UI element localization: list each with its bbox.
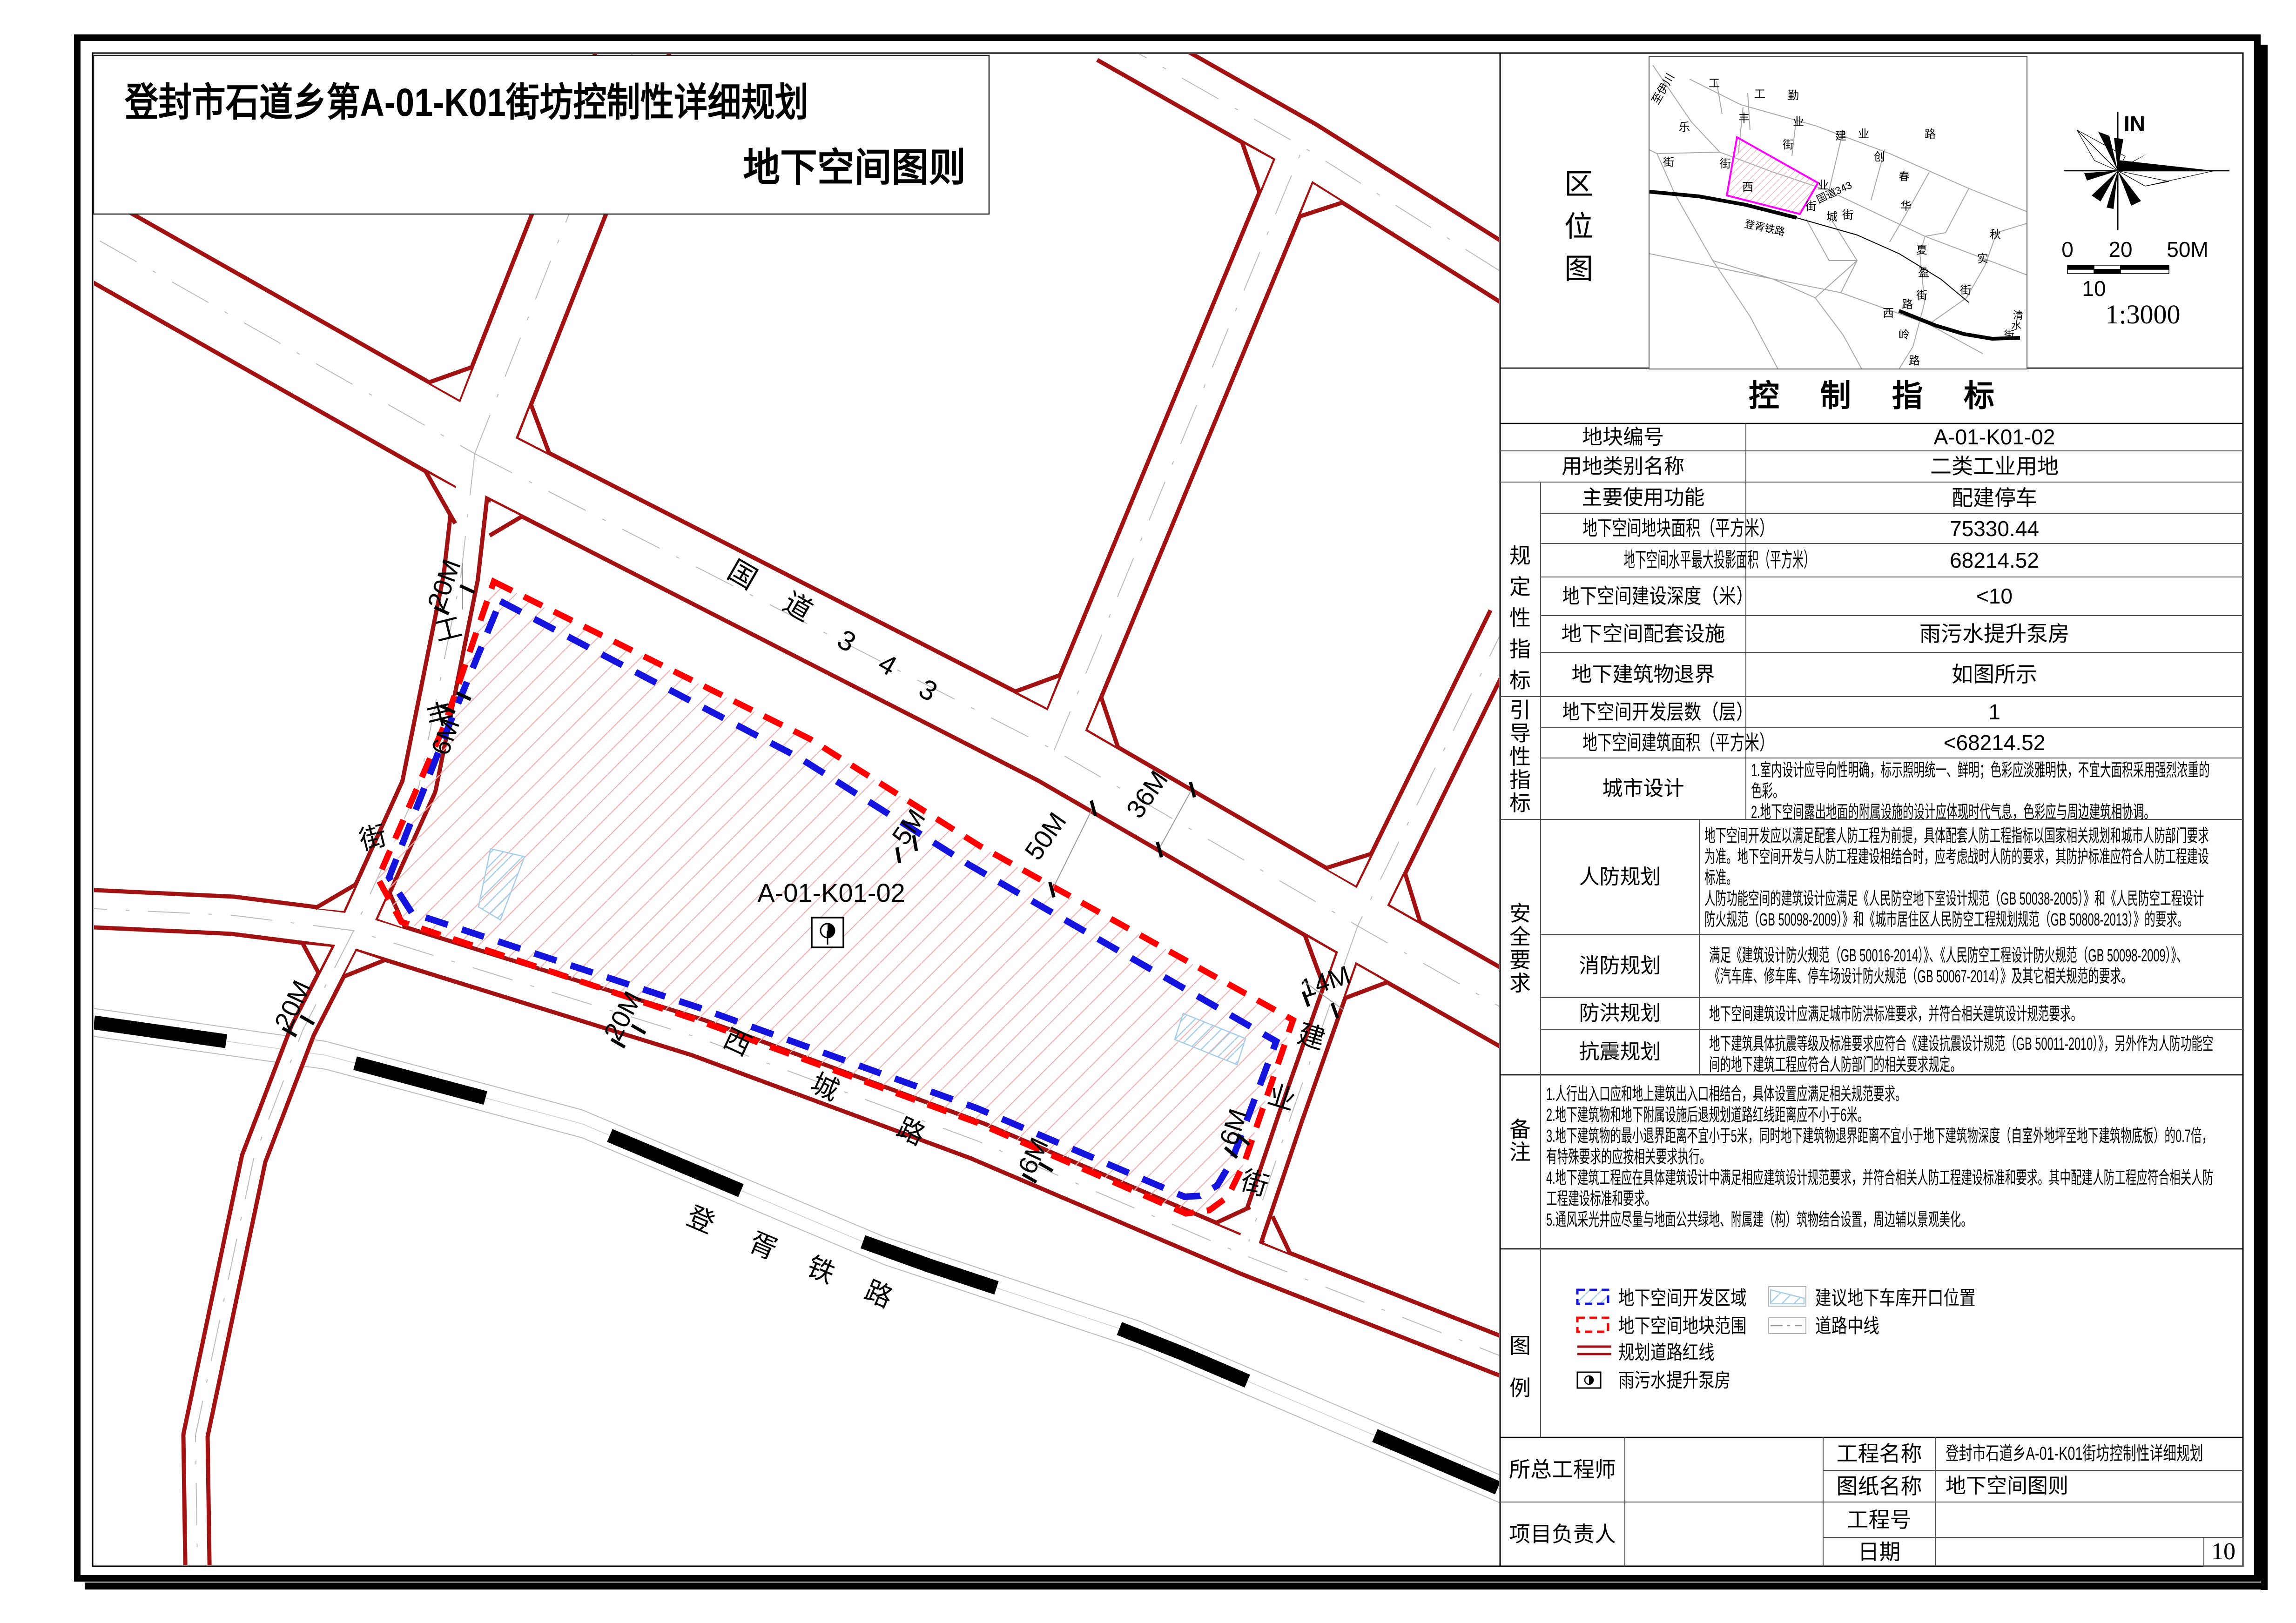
svg-text:春: 春: [1899, 170, 1910, 183]
svg-text:勤: 勤: [1788, 89, 1799, 102]
svg-text:西: 西: [1742, 181, 1753, 194]
svg-text:50M: 50M: [2167, 237, 2208, 262]
svg-text:秋: 秋: [1990, 228, 2001, 241]
svg-text:工: 工: [1754, 88, 1765, 101]
svg-text:丰: 丰: [1738, 112, 1750, 125]
svg-text:业: 业: [1793, 116, 1804, 128]
svg-text:路: 路: [1925, 128, 1936, 141]
svg-text:街: 街: [1842, 209, 1853, 221]
svg-text:路: 路: [1902, 298, 1913, 311]
svg-text:路: 路: [1909, 355, 1920, 367]
svg-text:1:3000: 1:3000: [2105, 299, 2180, 329]
svg-text:街: 街: [1783, 139, 1794, 151]
svg-text:街: 街: [1805, 200, 1817, 213]
svg-text:城: 城: [1826, 211, 1838, 223]
svg-text:街: 街: [1960, 284, 1971, 297]
svg-text:建: 建: [1835, 130, 1846, 142]
svg-text:A-01-K01-02: A-01-K01-02: [757, 878, 905, 907]
svg-text:IN: IN: [2124, 112, 2145, 136]
svg-text:乐: 乐: [1679, 121, 1690, 134]
svg-text:实: 实: [1977, 253, 1988, 265]
svg-text:0: 0: [2061, 237, 2074, 262]
svg-text:10: 10: [2082, 276, 2106, 301]
svg-text:华: 华: [1900, 200, 1912, 213]
svg-text:夏: 夏: [1916, 244, 1927, 256]
svg-text:20: 20: [2108, 237, 2132, 262]
svg-text:街: 街: [1663, 156, 1674, 169]
svg-text:业: 业: [1858, 128, 1869, 141]
svg-text:创: 创: [1874, 151, 1885, 163]
svg-text:西: 西: [1883, 307, 1894, 320]
svg-text:工: 工: [1709, 77, 1720, 90]
svg-text:街: 街: [1916, 289, 1927, 302]
svg-text:岭: 岭: [1899, 329, 1910, 341]
svg-text:街: 街: [1720, 158, 1731, 170]
svg-text:街: 街: [2004, 329, 2014, 341]
svg-text:盈: 盈: [1918, 267, 1929, 279]
